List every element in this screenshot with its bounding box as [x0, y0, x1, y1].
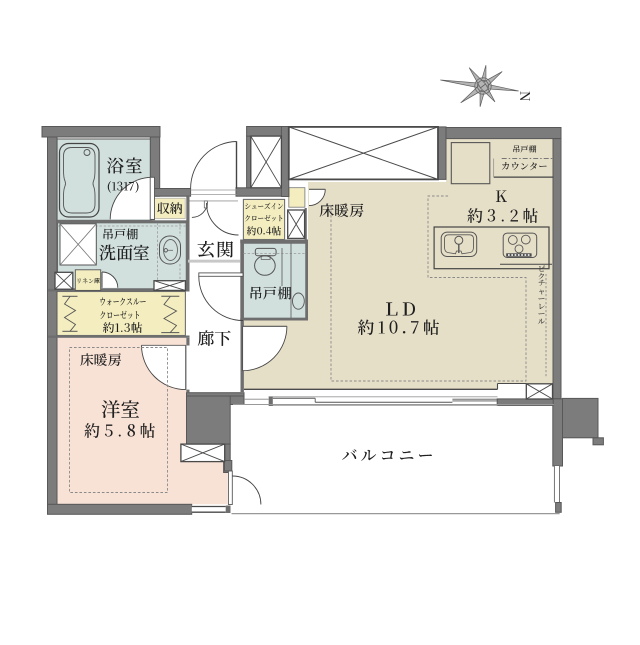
svg-text:約1.3帖: 約1.3帖 — [102, 319, 143, 336]
svg-text:玄関: 玄関 — [197, 236, 235, 262]
svg-text:洗面室: 洗面室 — [99, 239, 150, 264]
svg-text:吊戸棚: 吊戸棚 — [249, 284, 292, 304]
svg-text:N: N — [516, 91, 536, 102]
svg-text:床暖房: 床暖房 — [80, 350, 122, 370]
svg-text:カウンター: カウンター — [501, 159, 548, 173]
svg-text:収納: 収納 — [157, 198, 183, 217]
svg-text:ウォークスルー: ウォークスルー — [99, 294, 146, 308]
svg-text:約10.7帖: 約10.7帖 — [357, 315, 442, 339]
svg-text:床暖房: 床暖房 — [319, 200, 364, 221]
svg-text:浴室: 浴室 — [107, 153, 144, 178]
svg-text:廊下: 廊下 — [197, 325, 231, 350]
svg-text:ピクチャーレール: ピクチャーレール — [536, 264, 547, 325]
svg-text:約0.4帖: 約0.4帖 — [247, 223, 283, 238]
svg-text:シューズイン: シューズイン — [245, 201, 284, 212]
svg-text:(1317): (1317) — [107, 178, 140, 194]
svg-text:バルコニー: バルコニー — [341, 443, 436, 466]
svg-text:吊戸棚: 吊戸棚 — [512, 144, 536, 155]
svg-text:リネン庫: リネン庫 — [76, 276, 100, 285]
svg-text:約5.8帖: 約5.8帖 — [84, 419, 160, 442]
svg-text:約3.2帖: 約3.2帖 — [467, 203, 543, 226]
